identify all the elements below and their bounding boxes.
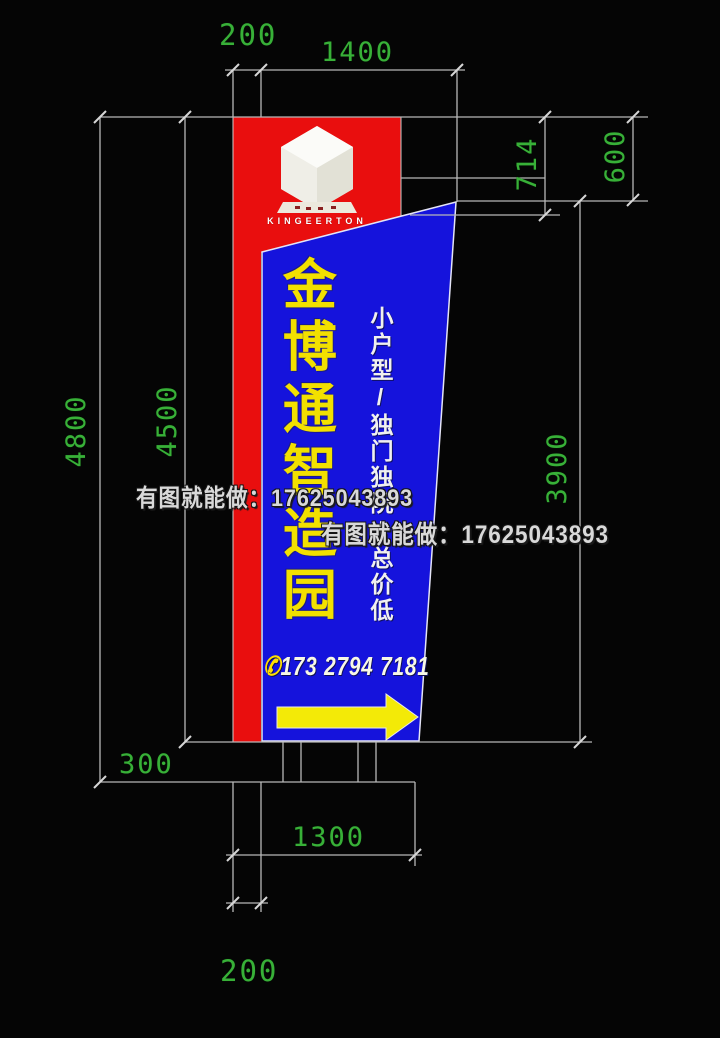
dim-label-header-depth-inner: 714 <box>512 119 542 209</box>
dim-label-total-height: 4800 <box>61 386 91 476</box>
dim-label-column-width-bottom: 200 <box>220 954 278 988</box>
logo-brand-text: KINGEERTON <box>262 216 372 226</box>
dim-label-foundation-width: 1300 <box>292 822 365 853</box>
dim-label-header-depth-outer: 600 <box>600 111 630 201</box>
watermark-text-1: 有图就能做：17625043893 <box>136 478 413 513</box>
phone-icon: ✆ <box>263 651 280 681</box>
dim-label-base-height: 300 <box>119 749 174 780</box>
dim-label-panel-height: 3900 <box>542 423 572 513</box>
sign-phone-line: ✆173 2794 7181 <box>263 651 430 682</box>
cad-drawing-canvas: 200 1400 714 600 4800 4500 3900 300 1300… <box>0 0 720 1038</box>
sign-side-text: 小户型/独门独院/总价低 <box>363 306 397 624</box>
phone-number: 173 2794 7181 <box>280 651 429 681</box>
dim-label-sign-height: 4500 <box>152 376 182 466</box>
dim-label-column-width-top: 200 <box>219 18 277 52</box>
sign-main-text: 金博通智造园 <box>275 256 333 628</box>
watermark-text-2: 有图就能做：17625043893 <box>321 515 609 551</box>
dim-label-panel-width: 1400 <box>321 37 394 68</box>
